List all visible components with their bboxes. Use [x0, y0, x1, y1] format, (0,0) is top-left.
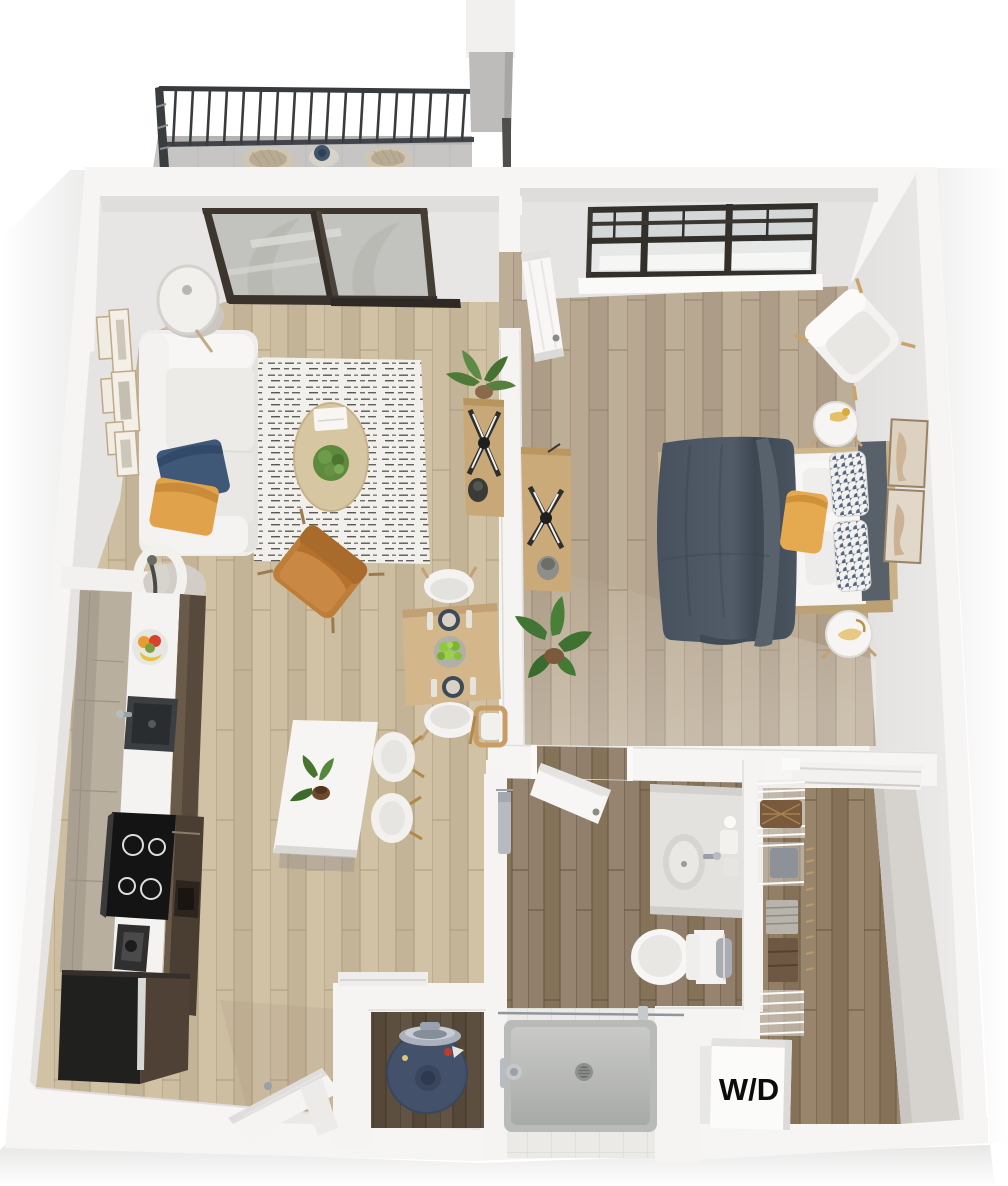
svg-text:W/D: W/D	[719, 1072, 779, 1107]
